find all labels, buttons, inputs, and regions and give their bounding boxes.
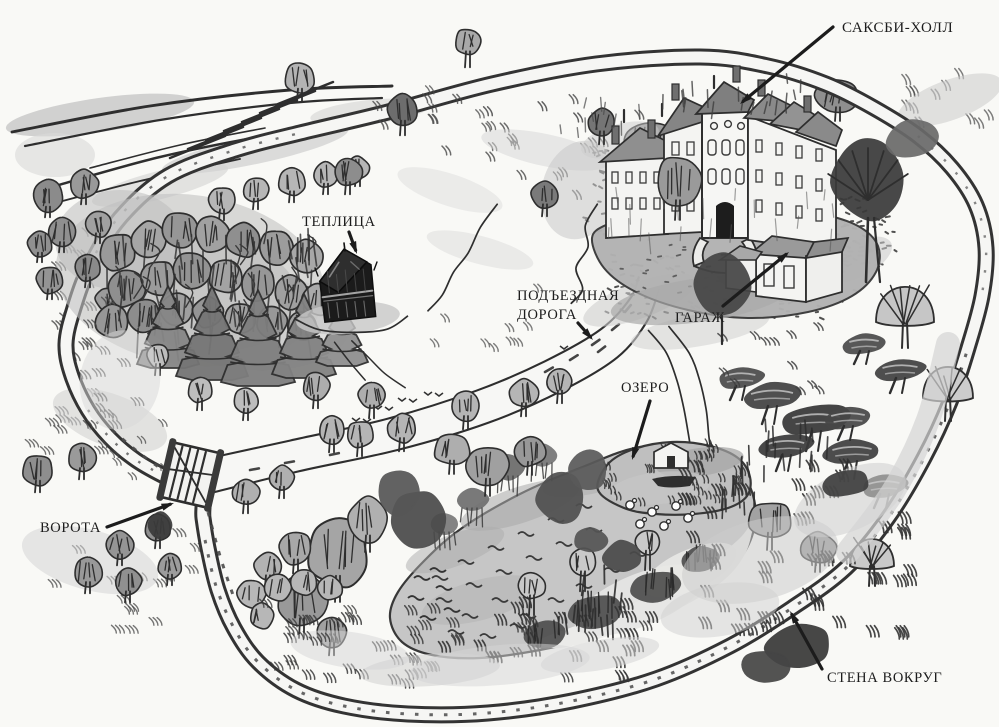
- svg-text:ГАРАЖ: ГАРАЖ: [675, 310, 725, 326]
- svg-text:ДОРОГА: ДОРОГА: [517, 307, 577, 323]
- svg-text:ТЕПЛИЦА: ТЕПЛИЦА: [302, 214, 376, 230]
- svg-text:ПОДЪЕЗДНАЯ: ПОДЪЕЗДНАЯ: [517, 288, 619, 304]
- svg-text:ОЗЕРО: ОЗЕРО: [621, 380, 669, 396]
- svg-text:ВОРОТА: ВОРОТА: [40, 520, 101, 536]
- svg-text:САКСБИ-ХОЛЛ: САКСБИ-ХОЛЛ: [842, 20, 953, 36]
- svg-text:СТЕНА ВОКРУГ: СТЕНА ВОКРУГ: [827, 670, 942, 686]
